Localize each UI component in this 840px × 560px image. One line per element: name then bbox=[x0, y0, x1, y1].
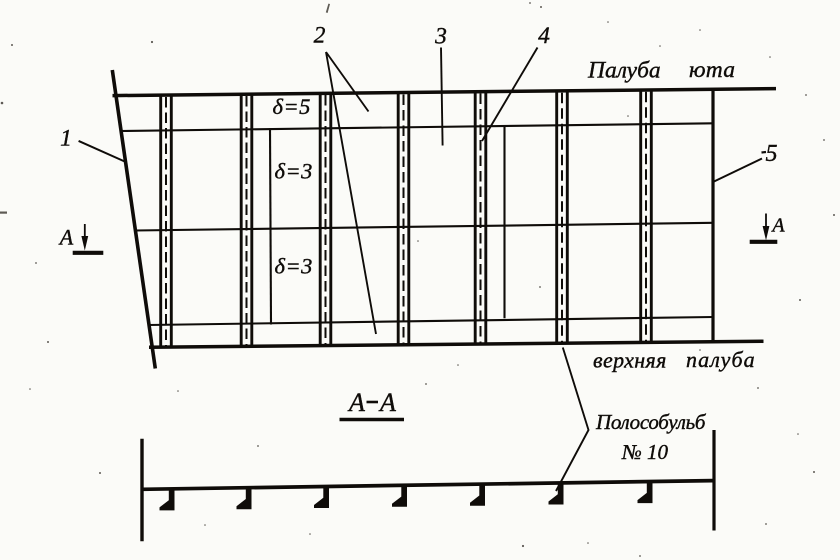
svg-text:δ=3: δ=3 bbox=[275, 254, 313, 279]
svg-text:верхняя: верхняя bbox=[593, 348, 667, 373]
svg-text:А: А bbox=[378, 388, 396, 417]
svg-text:Полособульб: Полособульб bbox=[595, 410, 707, 434]
svg-text:A: A bbox=[770, 215, 785, 237]
svg-text:δ=3: δ=3 bbox=[275, 159, 313, 184]
svg-text:Палуба: Палуба bbox=[587, 58, 661, 84]
svg-text:А: А bbox=[58, 225, 74, 250]
svg-text:5: 5 bbox=[766, 141, 778, 167]
svg-text:№ 10: № 10 bbox=[621, 440, 669, 464]
svg-text:δ=5: δ=5 bbox=[273, 94, 311, 119]
svg-text:юта: юта bbox=[689, 57, 735, 83]
svg-text:1: 1 bbox=[60, 126, 72, 152]
svg-text:палуба: палуба bbox=[686, 347, 756, 372]
svg-text:А: А bbox=[347, 388, 365, 417]
svg-text:2: 2 bbox=[314, 23, 326, 49]
svg-text:3: 3 bbox=[434, 24, 447, 50]
svg-text:4: 4 bbox=[538, 23, 550, 49]
